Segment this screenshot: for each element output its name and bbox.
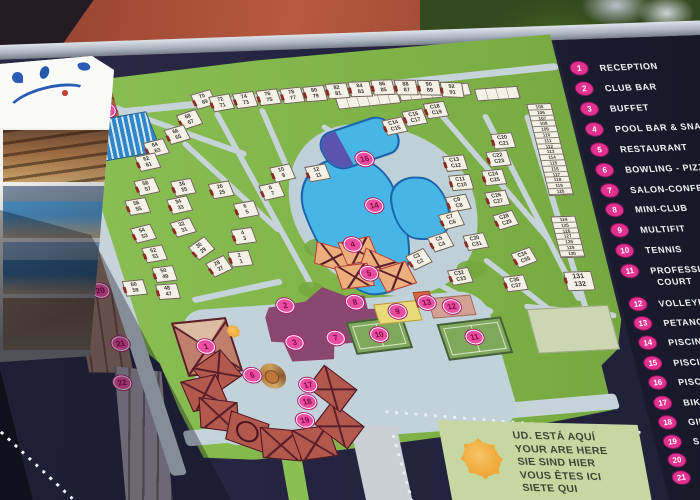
legend-label: PISCINA <box>677 376 700 387</box>
bungalow-number: 83 <box>357 89 365 96</box>
bungalow-number: 89 <box>426 88 433 94</box>
bungalow-block: 131132 <box>563 271 596 291</box>
you-are-here-line-it: SIETE QUI <box>521 482 616 497</box>
bungalow-block: C11C10 <box>448 174 474 191</box>
bungalow-number: 132 <box>574 281 588 290</box>
bungalow-number: 35 <box>180 187 188 194</box>
bungalow-number: C27 <box>493 198 505 206</box>
bungalow-number: 9 <box>281 173 287 180</box>
bungalow-block: C24C25 <box>481 169 508 187</box>
bungalow-number: 3 <box>242 236 247 243</box>
bungalow-number: 85 <box>380 87 388 94</box>
bungalow-number: 73 <box>242 100 250 107</box>
bungalow-number: 57 <box>144 186 152 193</box>
unit-number: 130 <box>560 250 584 256</box>
bungalow-number: C33 <box>456 276 468 284</box>
legend-label: PROFESSIONAL <box>649 263 700 275</box>
sun-core <box>226 325 241 337</box>
bungalow-number: 75 <box>266 97 274 104</box>
you-are-here-text: UD. ESTÁ AQUÍ YOUR ARE HERE SIE SIND HIE… <box>512 430 616 498</box>
bungalow-block: 8483 <box>347 81 373 97</box>
legend-label: PISCINA <box>672 356 700 367</box>
bungalow-number: C25 <box>489 177 501 184</box>
logo-swoosh <box>3 76 95 130</box>
bungalow-number: C15 <box>390 125 402 133</box>
bungalow-block: 9291 <box>440 82 465 98</box>
bungalow-block: C22C23 <box>485 150 512 168</box>
bungalow-block: 8079 <box>302 85 328 102</box>
bungalow-block: C20C21 <box>490 132 516 149</box>
bungalow-number: C21 <box>498 140 510 147</box>
bungalow-number: C12 <box>450 163 462 170</box>
bungalow-number: 33 <box>177 204 185 211</box>
sun-core <box>460 441 503 477</box>
legend-label: MINI-CLUB <box>634 202 689 214</box>
bungalow-number: C23 <box>494 158 506 165</box>
bungalow-number: 31 <box>180 227 189 235</box>
logo-glyph <box>77 61 91 73</box>
logo-glyph <box>38 65 51 80</box>
sun-icon <box>450 432 514 486</box>
bungalow-number: 47 <box>165 291 173 298</box>
bungalow-number: C2 <box>416 258 426 267</box>
bungalow-number: C17 <box>410 117 422 125</box>
bungalow-number: 67 <box>187 119 196 127</box>
bungalow-number: C35 <box>520 256 532 265</box>
bungalow-number: 65 <box>174 134 183 142</box>
bungalow-number: C31 <box>471 241 483 249</box>
legend-label-line2: COURT <box>656 276 693 287</box>
legend-label: BIKES <box>682 396 700 407</box>
bungalow-number: 71 <box>219 102 227 109</box>
you-are-here-box: UD. ESTÁ AQUÍ YOUR ARE HERE SIE SIND HIE… <box>437 420 657 500</box>
bungalow-block: 21 <box>227 250 254 268</box>
bungalow-number: C37 <box>511 283 523 290</box>
bungalow-number: 53 <box>141 233 150 241</box>
bungalow-number: 61 <box>145 162 153 169</box>
legend-label: CLUB BAR <box>604 81 658 93</box>
resort-logo <box>0 56 118 128</box>
bungalow-block: C36C37 <box>502 274 529 292</box>
bungalow-number: 27 <box>217 265 226 273</box>
legend-label: PISCINA <box>667 336 700 347</box>
bungalow-number: 91 <box>449 90 456 97</box>
bungalow-number: 59 <box>132 288 140 295</box>
legend-label: GIMNASIO <box>687 415 700 426</box>
bungalow-number: C8 <box>455 203 464 210</box>
bungalow-number: C6 <box>448 219 457 227</box>
bungalow-block: 8281 <box>324 82 350 99</box>
bungalow-number: 29 <box>199 247 208 256</box>
bungalow-block: 6059 <box>122 279 149 297</box>
legend-label: SAUNA <box>692 435 700 446</box>
bungalow-number: 77 <box>289 95 297 102</box>
bungalow-block: 8685 <box>370 79 396 95</box>
bungalow-number: 5 <box>245 209 250 216</box>
bungalow-number: 55 <box>135 206 143 213</box>
bungalow-number: 11 <box>315 172 323 179</box>
round-hall <box>234 418 260 446</box>
bungalow-block: 5049 <box>151 265 178 283</box>
logo-glyph <box>12 72 23 83</box>
bungalow-number: 51 <box>152 253 160 260</box>
legend-label: VOLLEYBALL <box>657 296 700 308</box>
bungalow-number: 81 <box>335 91 343 98</box>
bungalow-block: 7675 <box>255 88 282 106</box>
unit-number: 120 <box>548 188 572 194</box>
bungalow-number: C19 <box>431 109 443 117</box>
bungalow-number: C29 <box>501 219 513 228</box>
legend-label: MULTIFIT <box>639 223 686 234</box>
logo-dot <box>62 90 68 96</box>
legend-label: RECEPTION <box>598 61 658 73</box>
roof-line <box>314 425 364 427</box>
legend-label: TENNIS <box>644 244 683 255</box>
bungalow-number: 49 <box>162 274 170 281</box>
bungalow-block: C13C12 <box>442 154 469 172</box>
resort-map-sign-photo: UD. ESTÁ AQUÍ YOUR ARE HERE SIE SIND HIE… <box>0 0 700 500</box>
bungalow-number: 87 <box>403 88 411 94</box>
bungalow-number: 79 <box>312 93 320 100</box>
pale-utility-area <box>527 305 620 354</box>
bungalow-block: 8887 <box>394 80 419 96</box>
bungalow-number: C10 <box>456 182 468 189</box>
legend-label: PETANCA <box>662 316 700 327</box>
bungalow-number: C4 <box>438 241 448 249</box>
bungalow-block: 4847 <box>155 283 181 300</box>
legend-label: BUFFET <box>609 102 650 113</box>
bungalow-block: 9089 <box>417 80 442 96</box>
bungalow-number: 7 <box>270 191 276 198</box>
bungalow-number: 1 <box>239 259 244 266</box>
bungalow-number: 25 <box>218 189 226 196</box>
